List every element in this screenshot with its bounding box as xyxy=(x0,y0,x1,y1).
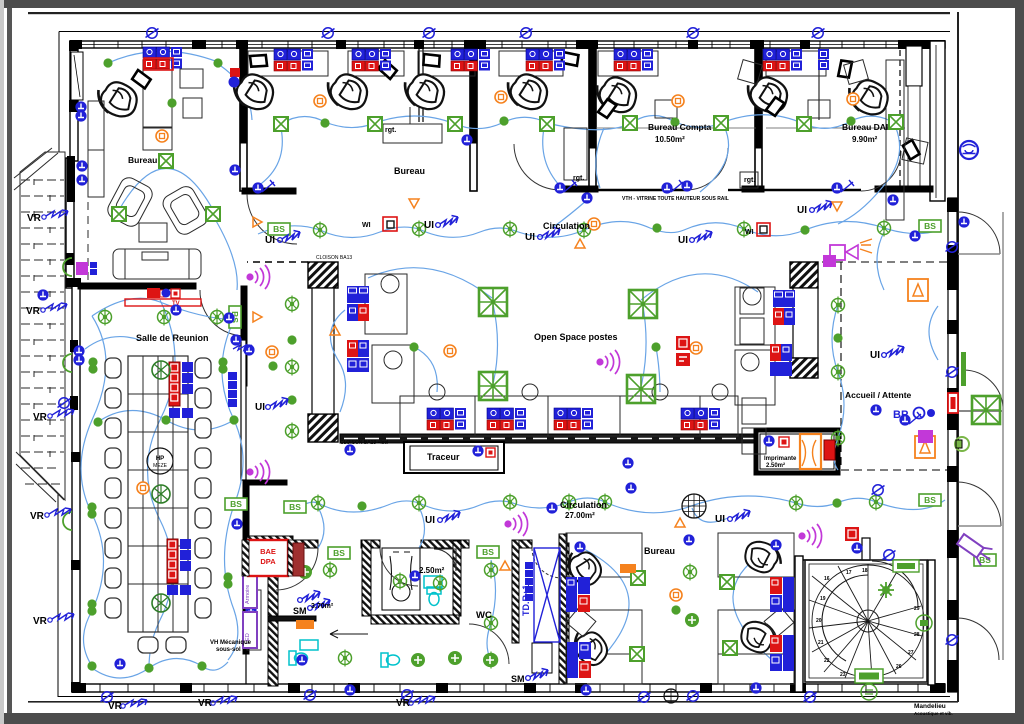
svg-text:WC: WC xyxy=(476,610,492,621)
svg-text:Circulation: Circulation xyxy=(560,500,607,510)
svg-text:CLOISON BA13: CLOISON BA13 xyxy=(316,255,352,261)
svg-text:Bureau: Bureau xyxy=(644,546,675,556)
svg-text:Traceur: Traceur xyxy=(427,452,460,462)
svg-text:2.50m²: 2.50m² xyxy=(419,566,445,575)
svg-text:SM: SM xyxy=(293,606,307,616)
svg-text:BAE: BAE xyxy=(260,547,276,556)
svg-text:UI: UI xyxy=(678,235,688,246)
svg-text:27.00m²: 27.00m² xyxy=(565,511,595,520)
svg-text:26: 26 xyxy=(896,664,902,670)
svg-text:sous-sol: sous-sol xyxy=(216,647,241,653)
svg-text:3.70m²: 3.70m² xyxy=(311,603,334,610)
svg-text:10.50m²: 10.50m² xyxy=(655,135,685,144)
svg-text:VR: VR xyxy=(33,412,48,423)
svg-text:Imprimante: Imprimante xyxy=(764,456,797,462)
svg-text:VTH - VITRINE TOUTE HAUTEUR SO: VTH - VITRINE TOUTE HAUTEUR SOUS RAIL xyxy=(622,196,729,202)
svg-text:UI: UI xyxy=(797,205,807,216)
svg-text:Open Space postes: Open Space postes xyxy=(534,332,618,342)
svg-text:Accueil / Attente: Accueil / Attente xyxy=(845,390,912,400)
svg-text:22: 22 xyxy=(824,658,830,664)
svg-text:SM: SM xyxy=(511,674,525,684)
svg-text:Bureau: Bureau xyxy=(128,155,157,165)
svg-text:MEZE: MEZE xyxy=(153,463,168,469)
svg-text:23: 23 xyxy=(840,672,846,678)
svg-text:20: 20 xyxy=(816,618,822,624)
svg-text:UI: UI xyxy=(525,232,535,243)
svg-text:Bureau: Bureau xyxy=(394,166,425,176)
svg-text:UI: UI xyxy=(255,402,265,413)
svg-text:27: 27 xyxy=(908,650,914,656)
svg-text:UI: UI xyxy=(424,220,434,231)
svg-text:Salle de Reunion: Salle de Reunion xyxy=(136,333,209,343)
svg-text:BP: BP xyxy=(893,409,908,421)
svg-text:DPA: DPA xyxy=(260,557,276,566)
svg-text:Acoustique et vib.: Acoustique et vib. xyxy=(914,711,953,716)
svg-text:VR: VR xyxy=(30,511,45,522)
svg-text:UI: UI xyxy=(870,350,880,361)
svg-text:HP: HP xyxy=(156,456,164,462)
svg-text:VH Mécanique: VH Mécanique xyxy=(210,640,252,646)
svg-text:28: 28 xyxy=(914,632,920,638)
svg-text:UI: UI xyxy=(715,514,725,525)
svg-text:rgt.: rgt. xyxy=(385,127,396,134)
svg-text:Bureau Compta: Bureau Compta xyxy=(648,122,712,132)
svg-text:9.90m²: 9.90m² xyxy=(852,135,878,144)
svg-text:rgt.: rgt. xyxy=(573,175,584,182)
svg-text:VR: VR xyxy=(33,616,48,627)
svg-text:18: 18 xyxy=(862,568,868,574)
svg-text:2.50m²: 2.50m² xyxy=(766,462,785,469)
svg-text:Mandelieu: Mandelieu xyxy=(914,703,946,710)
svg-text:VR: VR xyxy=(26,306,41,317)
svg-text:29: 29 xyxy=(914,606,920,612)
svg-text:19: 19 xyxy=(820,596,826,602)
svg-text:WI: WI xyxy=(362,222,371,229)
svg-text:UI: UI xyxy=(265,235,275,246)
svg-text:rgt.: rgt. xyxy=(744,177,755,184)
svg-text:UI: UI xyxy=(425,515,435,526)
svg-text:Armoire: Armoire xyxy=(245,585,251,604)
svg-text:VR: VR xyxy=(27,213,42,224)
svg-text:CLOISON BA13 +Isol: CLOISON BA13 +Isol xyxy=(340,440,388,446)
svg-text:16: 16 xyxy=(824,576,830,582)
svg-text:17: 17 xyxy=(846,570,852,576)
svg-text:21: 21 xyxy=(818,640,824,646)
svg-text:Circulation: Circulation xyxy=(543,221,590,231)
svg-text:Bureau DAI: Bureau DAI xyxy=(842,122,888,132)
svg-text:WI: WI xyxy=(745,229,754,236)
